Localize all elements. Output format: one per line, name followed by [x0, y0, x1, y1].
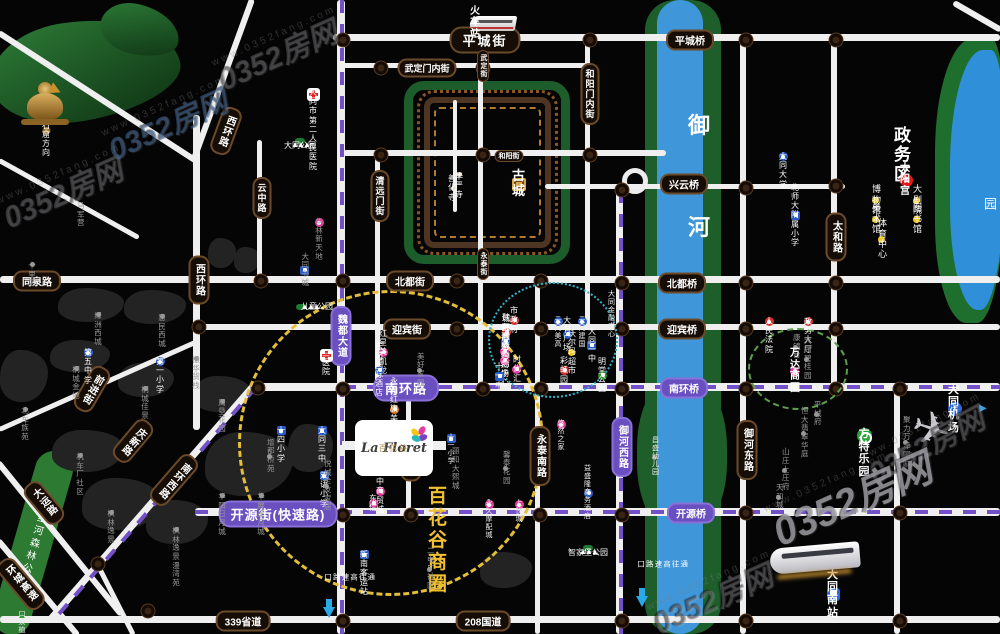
poi-text: 三医院	[322, 349, 330, 377]
poi-text: 增都桥苑	[267, 439, 275, 474]
poi-text: 枫林逸景	[107, 510, 115, 545]
road-junction	[740, 615, 753, 628]
poi-text: 大同一中	[588, 327, 596, 364]
poi-text: 善化寺	[448, 174, 456, 202]
road	[0, 158, 140, 240]
poi-text: 云冈建国	[579, 317, 586, 349]
poi-text: 华严寺	[455, 172, 463, 200]
poi-text: 明堂公园	[598, 357, 606, 394]
road-junction	[375, 62, 388, 75]
poi-text: 云冈国际酒店	[375, 342, 383, 397]
road-badge: 魏都大道	[331, 306, 352, 366]
poi-text: 惠民西城	[158, 314, 166, 349]
poi-text: 第五中学	[84, 348, 92, 385]
project-logo: La Floret 百花谷	[355, 420, 433, 476]
poi-text: 北师大附属小学	[791, 183, 799, 247]
map-canvas: 十里河森林公园 La Floret 百花谷 0352房网www.0352fang…	[0, 0, 1000, 634]
road-junction	[894, 507, 907, 520]
road	[740, 37, 746, 634]
road-badge: 迎宾街	[383, 319, 431, 340]
poi-text: 体育中心	[878, 218, 887, 259]
poi-text: 通往高速路口	[636, 560, 688, 569]
road-junction	[193, 321, 206, 334]
road-junction	[337, 34, 350, 47]
road-junction	[584, 34, 597, 47]
poi-text: 桐城金地	[72, 366, 80, 401]
road-badge: 兴云桥	[660, 174, 708, 195]
road-badge: 和阳街	[495, 150, 524, 162]
road-badge: 御河东路	[737, 420, 758, 480]
poi-text: 人民法院	[765, 317, 773, 354]
road-badge: 武定街	[477, 50, 489, 82]
poi-text: 河	[688, 215, 710, 240]
poi-text: 二电厂社区	[427, 547, 435, 590]
poi-text: 云冈美高	[555, 317, 562, 349]
road-badge: 和阳门内街	[581, 63, 600, 125]
poi-text: 御	[688, 113, 710, 138]
poi-text: 丽和 大熙城	[452, 447, 460, 490]
poi-text: 第一小学	[156, 357, 164, 394]
road-junction	[255, 275, 268, 288]
road-junction	[830, 277, 843, 290]
road-junction	[830, 180, 843, 193]
route-dash	[619, 190, 623, 634]
road-badge: 云中路	[253, 177, 272, 219]
road-badge: 平城桥	[666, 30, 714, 51]
road-badge: 同泉路	[13, 271, 61, 292]
bluetri-icon	[978, 404, 988, 414]
yu-river	[657, 0, 703, 634]
road-junction	[894, 615, 907, 628]
district-block	[58, 288, 124, 322]
poi-text: 枫林逸景 漫湾苑	[172, 527, 180, 587]
road-junction	[337, 615, 350, 628]
road-junction	[740, 182, 753, 195]
poi-text: 十一中	[495, 362, 503, 390]
road-junction	[830, 34, 843, 47]
poi-text: 机车厂社区	[76, 453, 84, 496]
road-badge: 御河西路	[612, 417, 633, 477]
road-junction	[477, 149, 490, 162]
road-junction	[740, 34, 753, 47]
poi-text: 永久 摩配城	[486, 500, 493, 540]
poi-text: 口泉植物园	[19, 611, 26, 634]
poi-text: 恒大翡翠华庭	[801, 407, 809, 459]
buddha-statue-icon	[15, 82, 75, 132]
road-badge: 北都桥	[658, 273, 706, 294]
poi-text: 馨泰花园	[503, 451, 511, 486]
poi-text: 大同碧桂园	[804, 337, 812, 380]
old-town-wall	[424, 97, 551, 248]
poi-text: 沃尔玛超市	[568, 329, 576, 375]
road	[0, 276, 1000, 283]
bluearrow-icon	[323, 607, 335, 618]
poi-text: 十里店	[28, 262, 36, 288]
poi-text: 市政府	[510, 306, 518, 334]
road-badge: 武定门内街	[397, 59, 456, 78]
poi-text: 彩虹园	[560, 356, 568, 384]
poi-text: 大同市第二 人民医院	[309, 88, 317, 171]
poi-text: 太阳宫	[900, 163, 910, 198]
poi-text: 昌盛幼儿园	[652, 437, 659, 477]
poi-text: 通往高速路口	[323, 573, 375, 582]
poi-text: 儿童公园	[301, 302, 333, 311]
poi-text: 古城	[512, 169, 527, 199]
poi-text: 天和城	[776, 484, 784, 510]
road-junction	[616, 383, 629, 396]
road	[952, 0, 1000, 33]
road-junction	[375, 149, 388, 162]
poi-text: 美好家园	[417, 353, 425, 388]
poi-text: 益盛隆商务酒店	[584, 465, 591, 521]
poi-text: 桐城佳景	[141, 386, 149, 421]
airplane-silhouette-icon	[905, 397, 958, 460]
wenying-lake	[950, 50, 1000, 310]
district-block	[0, 350, 48, 402]
road-badge: 永泰街	[477, 248, 489, 280]
poi-text: 大同金融中心	[608, 291, 615, 339]
poi-text: 上悦城	[516, 500, 523, 524]
road-junction	[337, 275, 350, 288]
poi-label: 智家堡公园	[583, 545, 593, 551]
road-badge: 开源桥	[667, 503, 715, 524]
road-junction	[616, 615, 629, 628]
road-badge: 清远门街	[371, 170, 390, 222]
poi-label: 儿童公园	[296, 304, 306, 310]
poi-text: 大同三中	[318, 426, 326, 463]
poi-text: 北车族苑	[21, 407, 29, 442]
poi-text: 华阳日月城	[218, 493, 226, 536]
poi-text: 东信	[369, 494, 377, 512]
project-logo-chinese: 百花谷	[370, 443, 418, 454]
poi-text: 大同书城	[302, 253, 310, 288]
poi-text: 大同公园	[284, 141, 316, 150]
road-badge: 永泰南路	[530, 426, 551, 486]
road-badge: 南环桥	[660, 378, 708, 399]
butterfly-icon	[411, 426, 427, 442]
road-junction	[740, 277, 753, 290]
poi-text: 马军营	[77, 202, 85, 228]
road-junction	[830, 323, 843, 336]
road-badge: 339省道	[216, 611, 271, 632]
poi-text: 大同南站	[827, 569, 838, 620]
road-junction	[92, 558, 105, 571]
poi-text: 时代汇	[513, 355, 521, 383]
poi-text: 万达商圈	[790, 348, 800, 394]
poi-text: 周垦花园	[218, 399, 226, 434]
district-block	[208, 238, 236, 268]
poi-text: 十四小学	[277, 426, 285, 463]
poi-text: 方特乐园	[859, 428, 870, 479]
road-junction	[616, 184, 629, 197]
road-junction	[142, 605, 155, 618]
road-junction	[451, 275, 464, 288]
road-junction	[584, 149, 597, 162]
poi-text: 悦城全友家居	[324, 460, 332, 512]
bluearrow-icon	[636, 596, 648, 607]
poi-text: 平城府	[814, 401, 822, 427]
poi-text: 智家堡公园	[568, 548, 608, 557]
poi-text: 悠然之家	[558, 420, 565, 452]
road-badge: 太和路	[826, 213, 847, 262]
road-junction	[616, 509, 629, 522]
road-junction	[616, 277, 629, 290]
district-block	[124, 290, 186, 324]
poi-text: 大同大学	[779, 152, 787, 189]
poi-text: 华林 新天地	[315, 218, 323, 261]
poi-text: 绿洲西城	[94, 312, 102, 347]
road-badge: 208国道	[456, 611, 511, 632]
road-junction	[740, 323, 753, 336]
road-badge: 北都街	[386, 271, 434, 292]
poi-text: 图书馆	[913, 203, 922, 234]
road-badge: 西环路	[189, 256, 210, 305]
road-junction	[534, 509, 547, 522]
poi-text: 火车站	[470, 6, 480, 41]
road-junction	[740, 383, 753, 396]
road-junction	[740, 507, 753, 520]
high-speed-train-icon	[769, 541, 861, 575]
poi-text: 振华货栈	[192, 356, 200, 391]
road-badge: 迎宾桥	[658, 319, 706, 340]
poi-label: 大同公园	[295, 138, 305, 144]
road-junction	[894, 383, 907, 396]
poi-text: 文瀛湖公园	[981, 197, 1000, 217]
poi-text: 华展星月城	[257, 493, 265, 536]
